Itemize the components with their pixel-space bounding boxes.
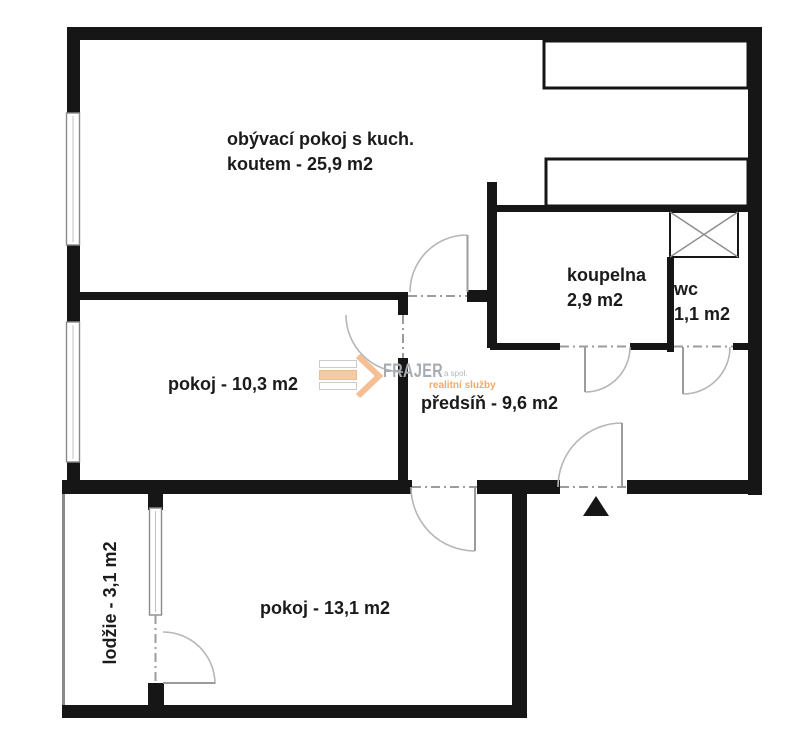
- door-room-large: [411, 487, 475, 551]
- shaft-icon: [670, 212, 738, 257]
- room-label-loggia: lodžie - 3,1 m2: [98, 513, 122, 693]
- floor-plan: obývací pokoj s kuch. koutem - 25,9 m2 k…: [0, 0, 800, 752]
- door-wc: [683, 347, 730, 394]
- logo-chevron-icon: [358, 356, 379, 396]
- room-label-living-line1: obývací pokoj s kuch.: [227, 127, 414, 152]
- door-living-hall: [410, 235, 468, 292]
- wall-left-outer-middle: [67, 245, 80, 322]
- door-arc-bathroom: [585, 347, 630, 392]
- entrance-marker-icon: [583, 496, 609, 516]
- kitchen-counter-top: [544, 41, 748, 88]
- room-label-living: obývací pokoj s kuch. koutem - 25,9 m2: [227, 127, 414, 177]
- watermark-tagline: realitní služby: [429, 380, 496, 391]
- wall-top-outer: [67, 27, 762, 40]
- room-label-bathroom-line1: koupelna: [567, 263, 646, 288]
- door-arc-room-large: [411, 487, 475, 551]
- wall-loggia-stub-bottom: [148, 683, 164, 705]
- wall-bottom-outer: [62, 705, 527, 718]
- logo-bar-middle: [319, 370, 357, 380]
- door-arc-living-hall: [410, 235, 467, 292]
- room-label-bathroom: koupelna 2,9 m2: [567, 263, 646, 313]
- wall-bathroom-bottom-left: [490, 343, 560, 350]
- kitchen-counter-bottom: [546, 159, 748, 206]
- room-label-wc: wc 1,1 m2: [674, 277, 730, 327]
- door-arc-wc: [683, 347, 730, 394]
- watermark-brand-suffix: a spol.: [444, 369, 468, 378]
- room-label-room-large: pokoj - 13,1 m2: [260, 596, 390, 621]
- door-entrance: [558, 423, 622, 487]
- wall-right-outer: [748, 27, 762, 495]
- wall-bathroom-bottom-right: [630, 343, 667, 350]
- room-label-room-small: pokoj - 10,3 m2: [168, 372, 298, 397]
- wall-middle-horizontal-center: [477, 480, 560, 494]
- wall-middle-horizontal-right: [627, 480, 762, 494]
- door-loggia: [163, 632, 215, 684]
- logo-bar-bottom: [319, 382, 357, 390]
- room-label-wc-line1: wc: [674, 277, 730, 302]
- wall-living-room-small: [78, 292, 400, 300]
- wall-left-outer-lower: [67, 462, 80, 482]
- room-label-living-line2: koutem - 25,9 m2: [227, 152, 414, 177]
- wall-left-outer-upper: [67, 27, 80, 113]
- wall-wc-bottom-right: [733, 343, 748, 350]
- door-bathroom: [585, 347, 630, 392]
- wall-hall-left-upper: [398, 292, 408, 315]
- door-arc-entrance: [558, 423, 622, 487]
- room-label-bathroom-line2: 2,9 m2: [567, 288, 646, 313]
- wall-bathroom-wc-divider: [667, 257, 674, 352]
- wall-room-large-right: [512, 494, 527, 718]
- room-label-wc-line2: 1,1 m2: [674, 302, 730, 327]
- door-arc-loggia: [163, 632, 215, 684]
- logo-bar-top: [319, 360, 357, 368]
- wall-middle-horizontal-left: [62, 480, 412, 494]
- room-label-hall: předsíň - 9,6 m2: [421, 391, 558, 416]
